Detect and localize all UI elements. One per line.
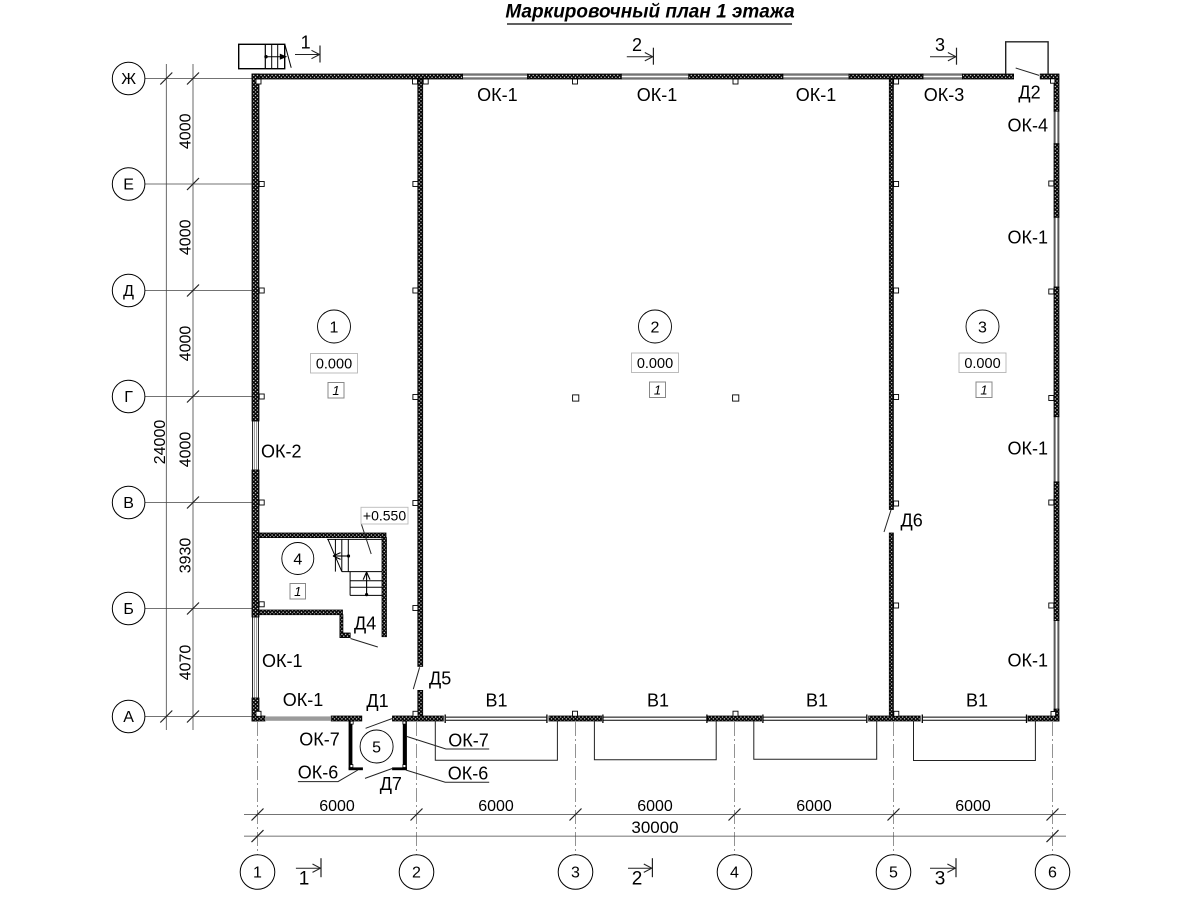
svg-text:2: 2: [632, 35, 642, 55]
svg-text:1: 1: [332, 383, 339, 398]
svg-text:4000: 4000: [178, 326, 195, 362]
svg-text:4000: 4000: [178, 219, 195, 255]
svg-text:5: 5: [889, 865, 898, 882]
svg-text:Д1: Д1: [366, 691, 388, 711]
svg-text:6000: 6000: [478, 798, 514, 815]
svg-text:ОК-1: ОК-1: [637, 85, 678, 105]
svg-text:1: 1: [654, 383, 661, 398]
svg-text:ОК-1: ОК-1: [796, 85, 837, 105]
svg-text:ОК-7: ОК-7: [448, 731, 489, 751]
svg-text:ОК-1: ОК-1: [262, 651, 303, 671]
svg-text:ОК-1: ОК-1: [283, 690, 324, 710]
svg-text:30000: 30000: [631, 818, 678, 837]
svg-text:А: А: [123, 709, 134, 726]
svg-text:Д4: Д4: [354, 614, 376, 634]
svg-text:4000: 4000: [178, 113, 195, 149]
svg-text:0.000: 0.000: [637, 356, 673, 372]
svg-text:В1: В1: [966, 691, 988, 711]
svg-text:4: 4: [293, 552, 302, 569]
svg-text:3: 3: [978, 320, 987, 337]
svg-text:ОК-2: ОК-2: [261, 442, 302, 462]
svg-text:1: 1: [294, 584, 301, 599]
svg-text:6000: 6000: [796, 798, 832, 815]
svg-text:+0.550: +0.550: [363, 508, 406, 524]
svg-text:ОК-4: ОК-4: [1008, 116, 1049, 136]
svg-text:В1: В1: [485, 691, 507, 711]
svg-text:6000: 6000: [637, 798, 673, 815]
svg-text:Б: Б: [123, 601, 134, 618]
svg-text:4000: 4000: [178, 432, 195, 468]
svg-text:1: 1: [330, 320, 339, 337]
svg-text:4: 4: [730, 865, 739, 882]
svg-text:3: 3: [935, 869, 946, 890]
svg-text:1: 1: [299, 869, 310, 890]
svg-text:ОК-1: ОК-1: [1008, 651, 1049, 671]
svg-text:3: 3: [935, 35, 945, 55]
svg-text:ОК-6: ОК-6: [448, 764, 489, 784]
svg-text:3930: 3930: [178, 538, 195, 574]
svg-text:Д5: Д5: [429, 669, 451, 689]
svg-text:ОК-1: ОК-1: [477, 85, 518, 105]
svg-text:1: 1: [301, 33, 311, 53]
svg-text:1: 1: [253, 865, 262, 882]
svg-text:0.000: 0.000: [316, 357, 352, 373]
svg-text:6: 6: [1048, 865, 1057, 882]
svg-text:В1: В1: [647, 691, 669, 711]
svg-text:Маркировочный план 1 этажа: Маркировочный план 1 этажа: [505, 2, 795, 23]
svg-text:1: 1: [980, 383, 987, 398]
svg-text:2: 2: [651, 320, 660, 337]
svg-text:ОК-6: ОК-6: [298, 763, 339, 783]
svg-text:24000: 24000: [152, 420, 169, 465]
svg-text:5: 5: [372, 740, 381, 757]
svg-text:Г: Г: [124, 389, 133, 406]
svg-text:Д6: Д6: [901, 511, 923, 531]
svg-text:4070: 4070: [178, 645, 195, 681]
svg-text:6000: 6000: [319, 798, 355, 815]
svg-text:Д: Д: [123, 283, 134, 300]
svg-text:2: 2: [632, 869, 643, 890]
svg-text:Д7: Д7: [380, 774, 402, 794]
svg-text:Е: Е: [123, 177, 134, 194]
svg-text:ОК-1: ОК-1: [1008, 228, 1049, 248]
svg-text:ОК-3: ОК-3: [924, 85, 965, 105]
svg-text:ОК-7: ОК-7: [299, 730, 340, 750]
svg-text:В1: В1: [806, 691, 828, 711]
svg-text:В: В: [123, 495, 134, 512]
svg-text:Ж: Ж: [121, 71, 136, 88]
svg-text:2: 2: [412, 865, 421, 882]
svg-text:ОК-1: ОК-1: [1008, 439, 1049, 459]
svg-text:6000: 6000: [955, 798, 991, 815]
svg-text:3: 3: [571, 865, 580, 882]
svg-text:0.000: 0.000: [964, 356, 1000, 372]
svg-text:Д2: Д2: [1018, 83, 1040, 103]
